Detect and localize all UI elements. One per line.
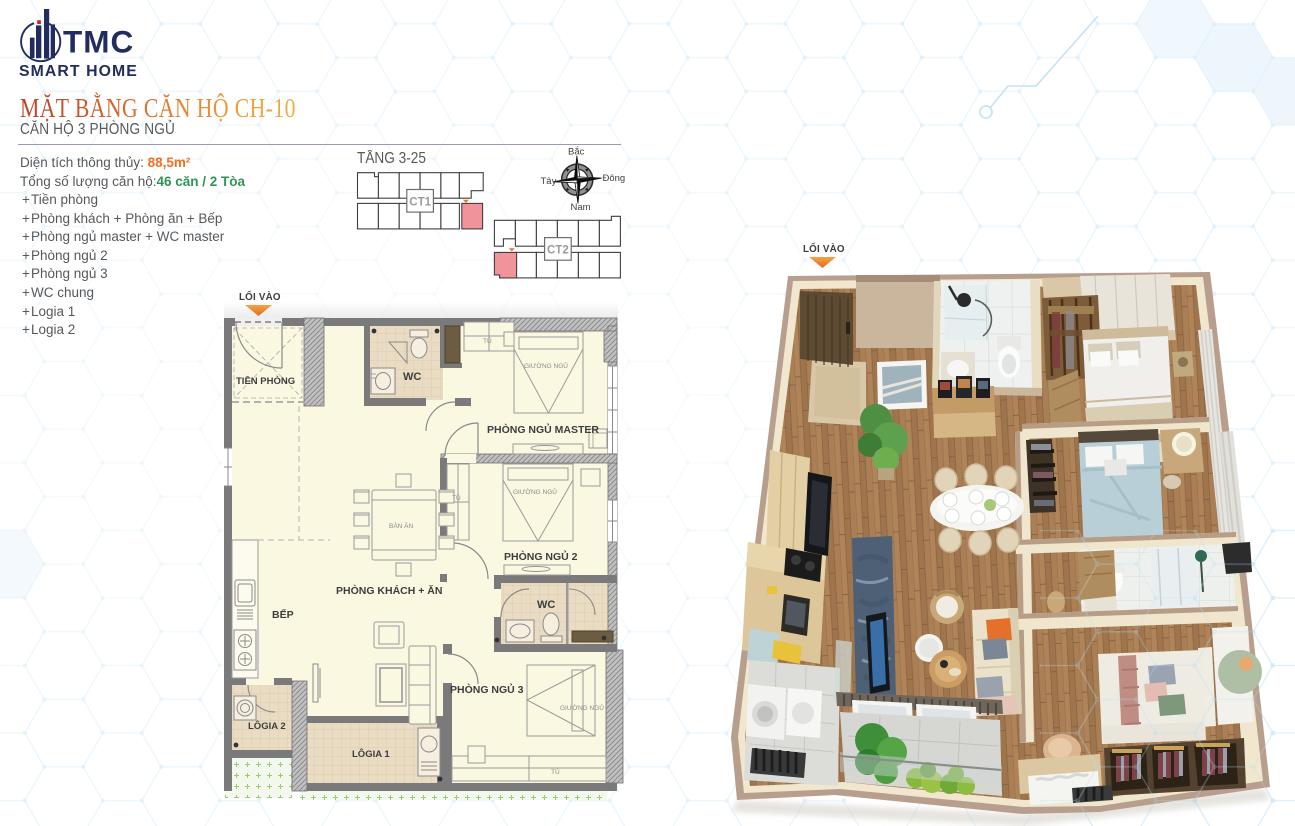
svg-text:Bắc: Bắc (568, 147, 585, 158)
svg-text:GIƯỜNG NGỦ: GIƯỜNG NGỦ (524, 361, 568, 370)
svg-text:LÔGIA 2: LÔGIA 2 (248, 720, 286, 732)
svg-text:GIƯỜNG NGỦ: GIƯỜNG NGỦ (560, 703, 604, 712)
svg-text:BÀN ĂN: BÀN ĂN (389, 521, 414, 530)
svg-text:Nam: Nam (571, 202, 591, 213)
svg-text:LỐI VÀO: LỐI VÀO (803, 243, 845, 255)
svg-text:TIỀN PHÒNG: TIỀN PHÒNG (236, 375, 295, 387)
svg-text:TỦ: TỦ (551, 767, 560, 776)
svg-text:TỦ: TỦ (452, 493, 461, 502)
svg-text:PHÒNG NGỦ 2: PHÒNG NGỦ 2 (504, 550, 578, 563)
svg-text:BẾP: BẾP (272, 608, 294, 621)
svg-text:CT2: CT2 (547, 245, 569, 257)
svg-text:WC: WC (537, 599, 555, 611)
svg-text:PHÒNG KHÁCH + ĂN: PHÒNG KHÁCH + ĂN (336, 584, 442, 597)
svg-text:PHÒNG NGỦ 3: PHÒNG NGỦ 3 (450, 683, 524, 696)
svg-text:TỦ: TỦ (483, 336, 492, 345)
svg-text:PHÒNG NGỦ MASTER: PHÒNG NGỦ MASTER (487, 423, 599, 436)
svg-text:LỐI VÀO: LỐI VÀO (239, 291, 281, 303)
svg-text:Tây: Tây (541, 176, 557, 187)
svg-text:SMART HOME: SMART HOME (19, 63, 138, 80)
svg-text:LÔGIA 1: LÔGIA 1 (352, 748, 390, 760)
svg-text:Đông: Đông (603, 173, 626, 184)
svg-text:TMC: TMC (63, 24, 134, 60)
svg-text:WC: WC (403, 371, 421, 383)
svg-text:CT1: CT1 (409, 197, 431, 209)
svg-text:GIƯỜNG NGỦ: GIƯỜNG NGỦ (513, 487, 557, 496)
